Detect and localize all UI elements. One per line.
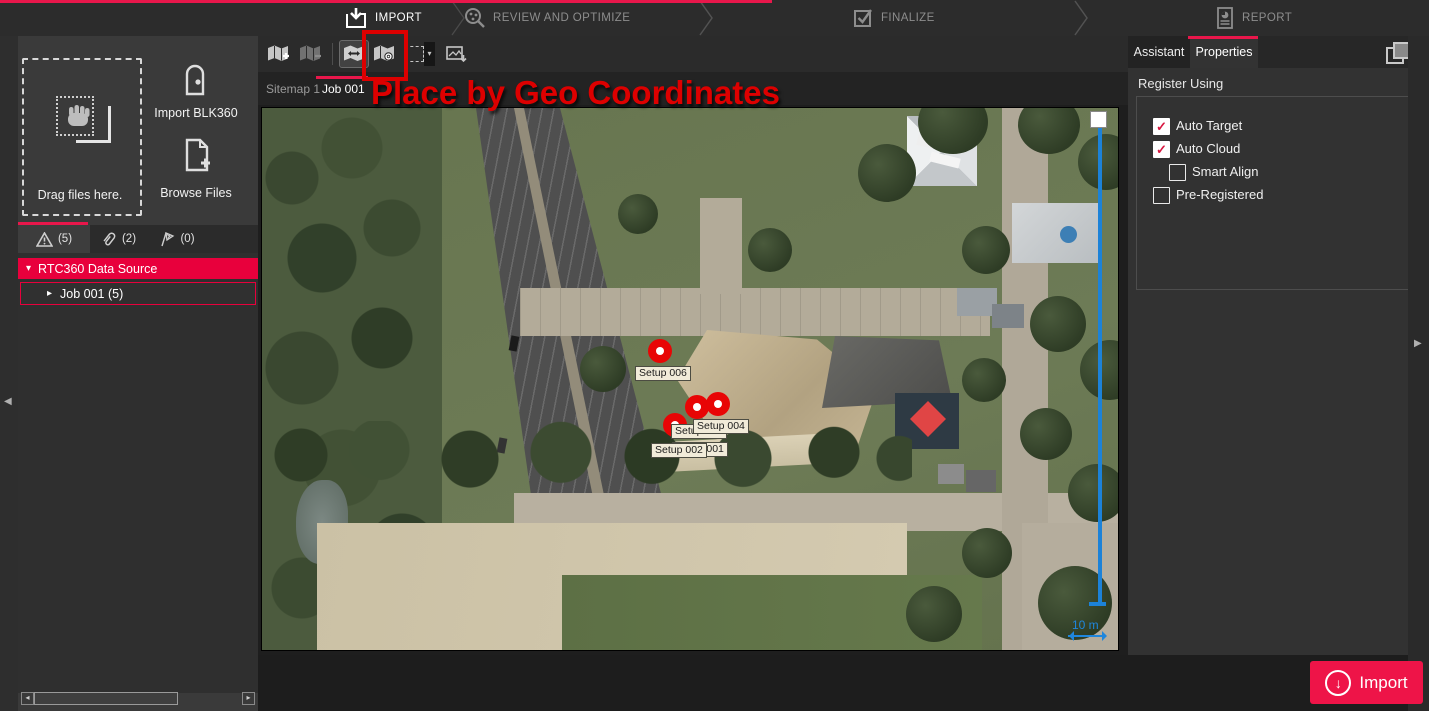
shed <box>992 304 1024 328</box>
toolbar-separator <box>332 43 333 65</box>
download-circle-icon: ↓ <box>1325 670 1351 696</box>
scroll-right-button[interactable]: ▸ <box>242 692 255 705</box>
tab-assistant[interactable]: Assistant <box>1128 36 1190 68</box>
bottom-strip <box>258 655 1408 711</box>
setup-marker-006[interactable] <box>648 339 672 363</box>
marquee-dropdown-caret[interactable]: ▾ <box>424 42 435 66</box>
scale-bar-left-arrow <box>1064 631 1074 641</box>
tree-row <box>262 421 912 489</box>
tab-constraints[interactable]: (0) <box>148 225 206 253</box>
measure-line-handle[interactable] <box>1090 111 1107 128</box>
tree <box>858 144 916 202</box>
parking-strip-upper <box>520 288 990 336</box>
checkbox-smart-align[interactable] <box>1169 164 1186 181</box>
export-image-button[interactable] <box>442 41 470 67</box>
browse-files-button[interactable]: Browse Files <box>140 186 252 200</box>
tree <box>1020 408 1072 460</box>
scrollbar-thumb[interactable] <box>34 692 178 705</box>
tab-import-label: IMPORT <box>375 12 422 24</box>
setup-marker[interactable] <box>706 392 730 416</box>
drag-drop-zone[interactable]: Drag files here. <box>22 58 142 216</box>
review-magnifier-icon <box>464 7 486 29</box>
tree-item-job-001[interactable]: ▸ Job 001 (5) <box>20 282 256 305</box>
pool <box>1060 226 1077 243</box>
drag-files-label: Drag files here. <box>24 188 136 202</box>
import-blk360-button[interactable]: Import BLK360 <box>140 106 252 120</box>
tree <box>906 586 962 642</box>
checkbox-auto-target[interactable]: ✓ <box>1153 118 1170 135</box>
tree <box>962 226 1010 274</box>
import-button-label: Import <box>1359 673 1407 693</box>
import-button[interactable]: ↓ Import <box>1310 661 1423 704</box>
right-collapse-rail: ▶ <box>1408 36 1429 711</box>
remove-sitemap-button[interactable] <box>296 41 324 67</box>
active-right-tab-indicator <box>1188 36 1258 39</box>
driveway-stub <box>700 198 742 294</box>
tree <box>1068 464 1118 522</box>
grab-hand-icon <box>62 102 94 132</box>
tree <box>962 358 1006 402</box>
setup-label-006[interactable]: Setup 006 <box>635 366 691 381</box>
setup-label-002[interactable]: Setup 002 <box>651 443 707 458</box>
tab-sitemap-1[interactable]: Sitemap 1 <box>266 72 320 105</box>
attachments-count: (2) <box>122 233 136 245</box>
browse-files-icon <box>180 136 214 176</box>
scale-label: 10 m <box>1072 618 1099 632</box>
tab-issues[interactable]: (5) <box>18 225 90 253</box>
application-window: IMPORT REVIEW AND OPTIMIZE <box>0 0 1429 711</box>
workflow-bar: IMPORT REVIEW AND OPTIMIZE <box>0 0 1429 37</box>
tree-root-label: RTC360 Data Source <box>38 262 157 276</box>
left-collapse-rail: ◀ <box>0 36 18 711</box>
shed <box>938 464 964 484</box>
constraints-count: (0) <box>180 233 194 245</box>
tree <box>962 528 1012 578</box>
checkbox-auto-cloud[interactable]: ✓ <box>1153 141 1170 158</box>
expander-closed-icon[interactable]: ▸ <box>47 288 52 299</box>
tab-review-label: REVIEW AND OPTIMIZE <box>493 12 630 24</box>
active-left-tab-indicator <box>18 222 88 225</box>
tree <box>748 228 792 272</box>
expander-open-icon[interactable]: ▾ <box>26 263 31 274</box>
tab-finalize[interactable]: FINALIZE <box>852 0 935 36</box>
tab-attachments[interactable]: (2) <box>90 225 148 253</box>
import-source-panel: Drag files here. Import BLK360 Browse Fi… <box>18 36 258 711</box>
constraint-icon <box>159 231 175 247</box>
tab-properties[interactable]: Properties <box>1190 36 1258 68</box>
collapse-left-icon[interactable]: ◀ <box>4 396 12 407</box>
shed <box>957 288 997 316</box>
checkbox-pre-registered[interactable] <box>1153 187 1170 204</box>
add-sitemap-button[interactable] <box>264 41 292 67</box>
tab-finalize-label: FINALIZE <box>881 12 935 24</box>
measure-line-end-cap <box>1089 602 1106 606</box>
finalize-check-icon <box>852 7 874 29</box>
expand-right-icon[interactable]: ▶ <box>1414 338 1422 349</box>
source-tree <box>18 253 258 693</box>
shed <box>966 470 996 492</box>
import-icon <box>344 7 368 29</box>
scroll-left-button[interactable]: ◂ <box>21 692 34 705</box>
metal-roof-building <box>1012 203 1098 263</box>
tree-child-label: Job 001 (5) <box>60 287 123 301</box>
report-document-icon <box>1215 6 1235 30</box>
tree <box>1030 296 1086 352</box>
issues-count: (5) <box>58 233 72 245</box>
warning-icon <box>36 232 53 247</box>
scale-bar-right-arrow <box>1102 631 1112 641</box>
annotation-text: Place by Geo Coordinates <box>371 74 780 112</box>
paperclip-icon <box>102 231 117 247</box>
setup-label-004[interactable]: Setup 004 <box>693 419 749 434</box>
tree <box>580 346 626 392</box>
checkbox-auto-cloud-label[interactable]: Auto Cloud <box>1176 141 1240 156</box>
properties-panel: Assistant Properties Register Using ✓ Au… <box>1128 36 1429 655</box>
blk360-device-icon <box>178 60 212 98</box>
measure-line[interactable] <box>1098 125 1102 605</box>
section-title: Register Using <box>1138 76 1223 91</box>
tab-report[interactable]: REPORT <box>1215 0 1292 36</box>
checkbox-smart-align-label[interactable]: Smart Align <box>1192 164 1258 179</box>
checkbox-auto-target-label[interactable]: Auto Target <box>1176 118 1242 133</box>
tab-report-label: REPORT <box>1242 12 1292 24</box>
tab-job-001[interactable]: Job 001 <box>322 72 365 105</box>
tree-item-rtc360-data-source[interactable]: ▾ RTC360 Data Source <box>18 258 258 279</box>
checkbox-pre-registered-label[interactable]: Pre-Registered <box>1176 187 1263 202</box>
tree <box>618 194 658 234</box>
sitemap-viewport[interactable]: Setup 006 Setup 003 Setup 004 Setup 001 … <box>262 108 1118 650</box>
tab-review-and-optimize[interactable]: REVIEW AND OPTIMIZE <box>464 0 630 36</box>
